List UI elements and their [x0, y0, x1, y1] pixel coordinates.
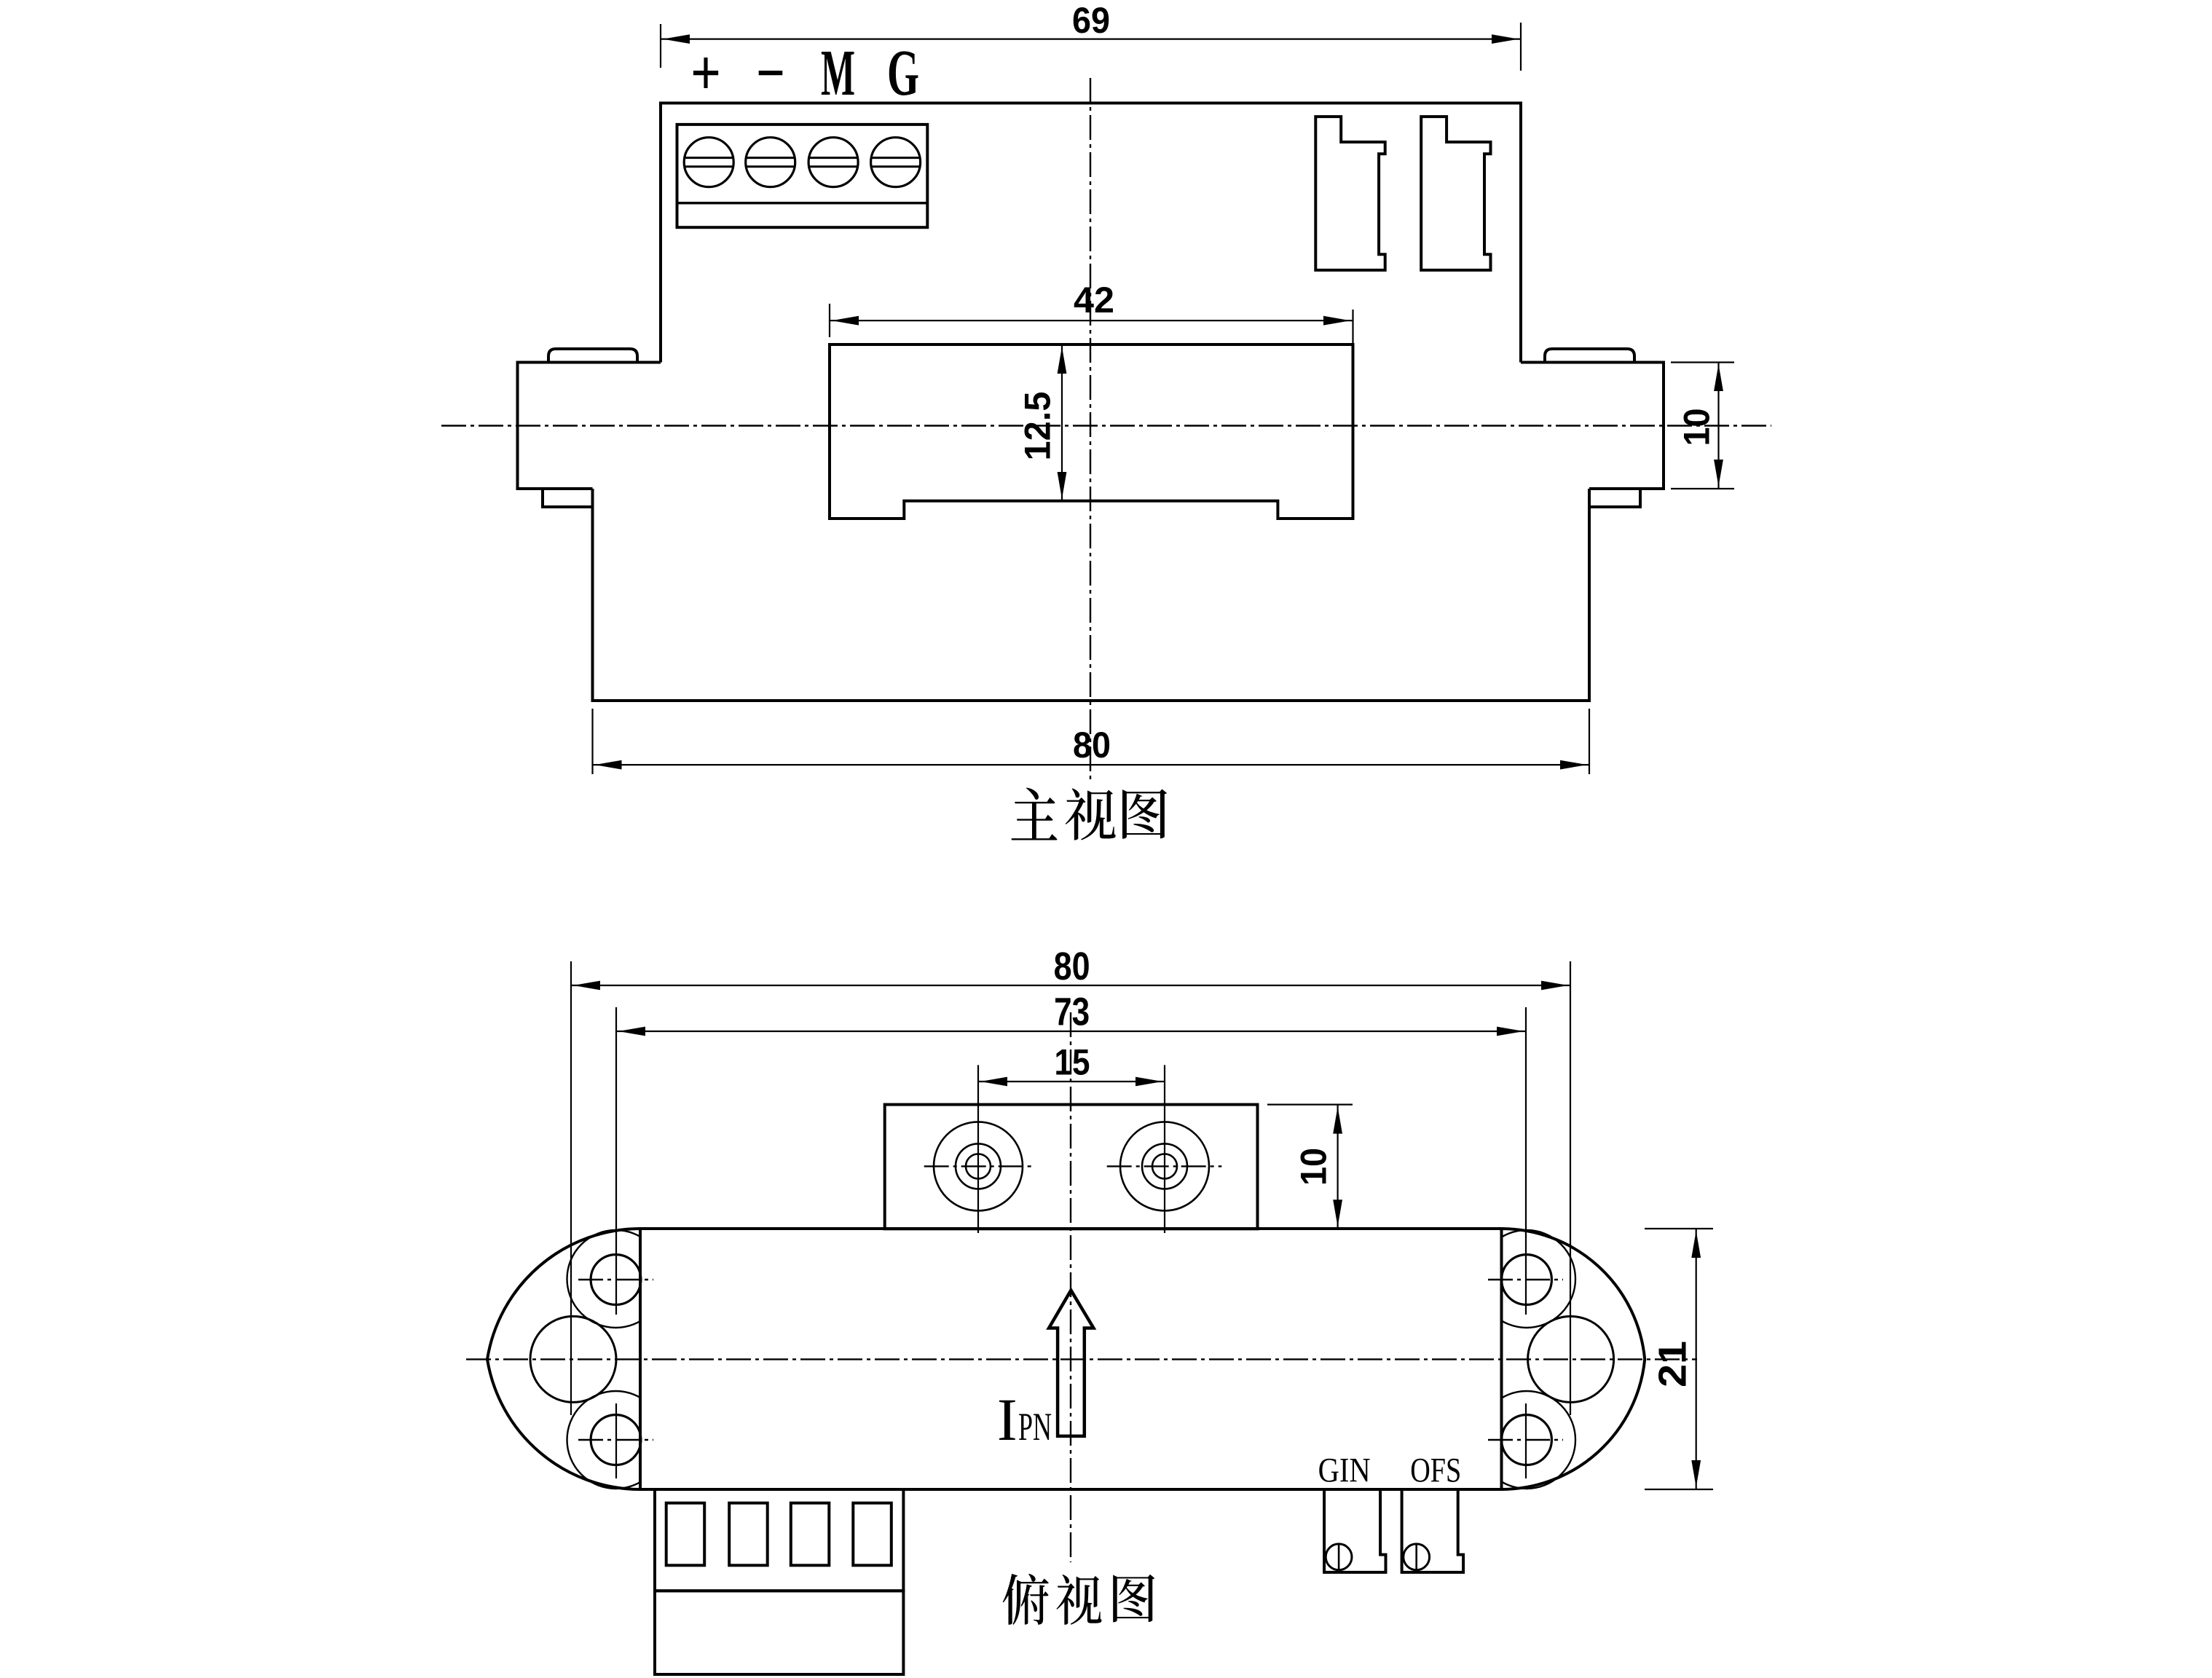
- svg-text:69: 69: [1072, 0, 1110, 41]
- svg-text:80: 80: [1073, 725, 1111, 765]
- svg-text:21: 21: [1651, 1341, 1695, 1387]
- svg-text:15: 15: [1055, 1042, 1090, 1083]
- svg-text:G: G: [887, 37, 919, 109]
- svg-text:OFS: OFS: [1410, 1451, 1461, 1489]
- svg-text:73: 73: [1054, 990, 1090, 1034]
- svg-text:42: 42: [1074, 280, 1114, 320]
- svg-text:GIN: GIN: [1318, 1451, 1371, 1489]
- svg-text:I: I: [997, 1386, 1018, 1453]
- svg-text:−: −: [756, 37, 785, 109]
- svg-text:10: 10: [1677, 409, 1717, 446]
- svg-text:M: M: [821, 37, 855, 109]
- svg-text:+: +: [690, 37, 721, 109]
- svg-text:10: 10: [1294, 1148, 1334, 1186]
- svg-text:80: 80: [1054, 945, 1090, 988]
- svg-text:PN: PN: [1018, 1405, 1052, 1449]
